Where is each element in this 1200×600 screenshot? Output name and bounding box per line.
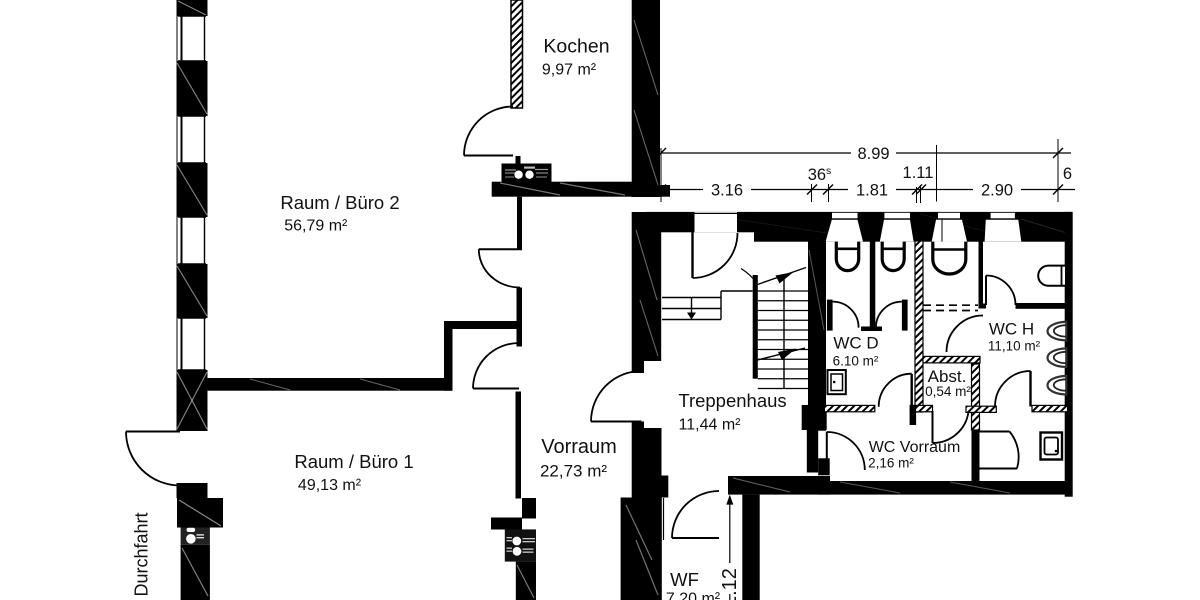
svg-text:1.11: 1.11 <box>903 164 934 182</box>
svg-text:2,16 m²: 2,16 m² <box>868 456 914 471</box>
svg-text:1.12: 1.12 <box>719 568 741 600</box>
svg-text:11,10 m²: 11,10 m² <box>988 339 1041 354</box>
svg-text:6.10 m²: 6.10 m² <box>833 354 879 369</box>
svg-text:Treppenhaus: Treppenhaus <box>678 390 786 411</box>
svg-text:49,13 m²: 49,13 m² <box>298 477 362 494</box>
svg-text:3.16: 3.16 <box>711 182 743 200</box>
svg-text:Kochen: Kochen <box>543 36 609 58</box>
svg-text:8.99: 8.99 <box>857 145 889 163</box>
svg-text:WC H: WC H <box>989 320 1034 339</box>
svg-text:1.81: 1.81 <box>856 182 888 200</box>
svg-text:11,44 m²: 11,44 m² <box>679 417 742 434</box>
svg-text:2.90: 2.90 <box>981 182 1013 200</box>
svg-text:WC Vorraum: WC Vorraum <box>869 439 961 456</box>
svg-text:WF: WF <box>670 569 699 590</box>
svg-text:22,73 m²: 22,73 m² <box>540 462 607 481</box>
svg-text:Vorraum: Vorraum <box>541 436 617 458</box>
svg-text:Raum / Büro 2: Raum / Büro 2 <box>280 192 399 213</box>
svg-text:WC D: WC D <box>833 334 878 353</box>
svg-text:0,54 m²: 0,54 m² <box>925 384 971 399</box>
svg-text:Durchfahrt: Durchfahrt <box>132 512 152 596</box>
svg-text:56,79 m²: 56,79 m² <box>284 218 348 235</box>
svg-text:9,97 m²: 9,97 m² <box>542 62 597 79</box>
svg-text:Raum / Büro 1: Raum / Büro 1 <box>294 451 413 472</box>
svg-text:7,20 m²: 7,20 m² <box>666 591 721 600</box>
svg-text:6: 6 <box>1063 165 1072 183</box>
